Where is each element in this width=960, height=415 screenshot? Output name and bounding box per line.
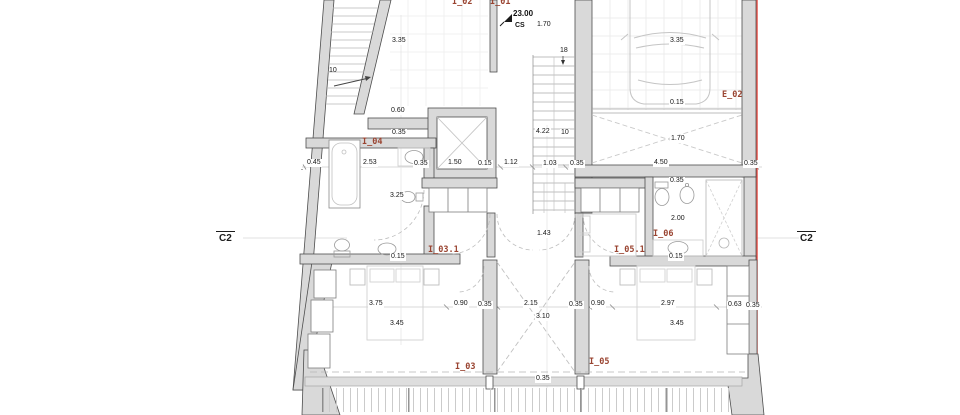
dim-label: 2.15 [523, 300, 539, 308]
dim-label: 0.35 [413, 160, 429, 168]
dim-label: 0.35 [477, 301, 493, 309]
level-code: CS [515, 22, 525, 29]
dim-label: 1.43 [536, 230, 552, 238]
dim-label: 0.35 [569, 160, 585, 168]
dim-label: 2.00 [670, 215, 686, 223]
section-marker-c2-left: C2 [216, 231, 235, 244]
dim-label: 4.50 [653, 159, 669, 167]
terrace-railing-slats [322, 388, 734, 412]
section-marker-c2-right: C2 [797, 231, 816, 244]
bathroom-i06-fixtures [653, 180, 742, 256]
dim-label: 0.15 [390, 253, 406, 261]
walls [293, 0, 764, 415]
dim-label: 1.12 [503, 159, 519, 167]
dim-label: 4.22 [535, 128, 551, 136]
room-label-i02: I_02 [452, 0, 472, 7]
level-value: 23.00 [513, 9, 533, 18]
dim-label: 3.35 [669, 37, 685, 45]
dim-label: 1.70 [670, 135, 686, 143]
dim-label: 0.63 [727, 301, 743, 309]
dim-label: 0.35 [535, 375, 551, 383]
dim-label: 1.70 [536, 21, 552, 29]
room-label-e02: E_02 [722, 90, 742, 100]
dim-label: 2.97 [660, 300, 676, 308]
dim-label: 0.35 [568, 301, 584, 309]
level-marker-flag [500, 14, 512, 26]
garage-tile-grid [592, 0, 742, 110]
room-label-i01: I_01 [490, 0, 510, 7]
car [621, 0, 719, 104]
dim-label: 0.35 [391, 129, 407, 137]
floor-plan-canvas: C2 C2 23.00 CS I_02 I_01 E_02 I_04 I_03.… [0, 0, 960, 415]
dim-label: 0.35 [743, 160, 759, 168]
dim-label: 0.60 [390, 107, 406, 115]
dim-label: 0.90 [453, 300, 469, 308]
dim-label: 2.53 [362, 159, 378, 167]
dim-label: 18 [559, 47, 569, 55]
room-label-i05: I_05 [589, 357, 609, 367]
ramp-void [592, 115, 742, 163]
dim-label: 10 [560, 129, 570, 137]
garage-door-line [592, 109, 742, 113]
room-label-i031: I_03.1 [428, 245, 459, 255]
tile-grid [390, 0, 488, 106]
dim-label: 3.35 [391, 37, 407, 45]
room-label-i051: I_05.1 [614, 245, 645, 255]
dim-label: 0.35 [745, 302, 761, 310]
dim-label: 10 [328, 67, 338, 75]
dim-label: 3.75 [368, 300, 384, 308]
dim-label: 0.45 [306, 159, 322, 167]
dim-label: 1.50 [447, 159, 463, 167]
dim-label: 0.35 [669, 177, 685, 185]
dimension-ticks [301, 165, 759, 310]
room-label-i03: I_03 [455, 362, 475, 372]
dim-label: 3.25 [389, 192, 405, 200]
room-label-i06: I_06 [653, 229, 673, 239]
floor-plan-drawing [0, 0, 960, 415]
dim-label: 0.15 [477, 160, 493, 168]
dim-label: 3.10 [535, 313, 551, 321]
dim-label: 1.03 [542, 160, 558, 168]
terrace [305, 372, 745, 389]
dim-label: 3.45 [389, 320, 405, 328]
room-label-i04: I_04 [362, 137, 382, 147]
dim-label: 3.45 [669, 320, 685, 328]
dim-label: 0.15 [669, 99, 685, 107]
dim-label: 0.90 [590, 300, 606, 308]
dim-label: 0.15 [668, 253, 684, 261]
